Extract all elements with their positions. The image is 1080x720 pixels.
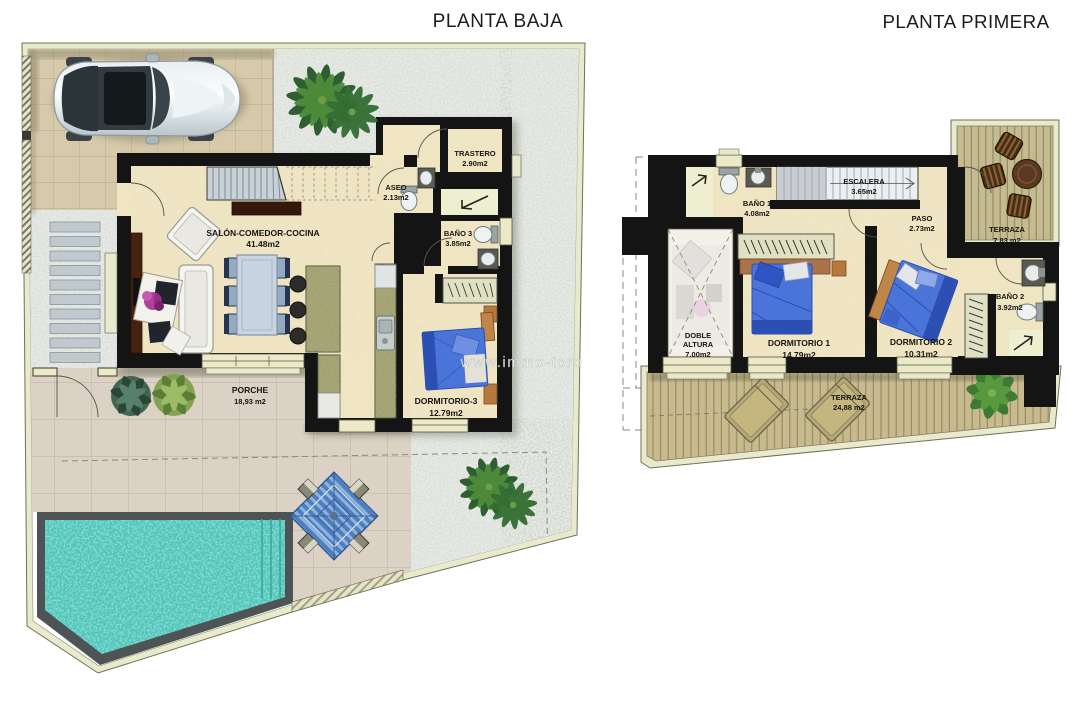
svg-text:7.00m2: 7.00m2 — [685, 350, 710, 359]
svg-text:SALÓN-COMEDOR-COCINA: SALÓN-COMEDOR-COCINA — [206, 227, 319, 238]
svg-text:41.48m2: 41.48m2 — [246, 239, 280, 249]
svg-text:www.immo-toro: www.immo-toro — [460, 354, 584, 371]
svg-text:ESCALERA: ESCALERA — [843, 177, 885, 186]
svg-text:3.92m2: 3.92m2 — [997, 303, 1022, 312]
svg-text:PLANTA BAJA: PLANTA BAJA — [433, 11, 564, 32]
svg-text:DOBLE: DOBLE — [685, 331, 711, 340]
svg-text:14.79m2: 14.79m2 — [782, 350, 816, 360]
svg-text:BAÑO 1: BAÑO 1 — [743, 199, 771, 208]
svg-text:18,93 m2: 18,93 m2 — [234, 397, 266, 406]
svg-text:3.65m2: 3.65m2 — [851, 187, 876, 196]
svg-text:7,83 m2: 7,83 m2 — [993, 236, 1021, 245]
svg-text:DORMITORIO 2: DORMITORIO 2 — [890, 337, 952, 347]
svg-text:4.08m2: 4.08m2 — [744, 209, 769, 218]
svg-text:ALTURA: ALTURA — [683, 340, 714, 349]
svg-text:PLANTA PRIMERA: PLANTA PRIMERA — [882, 11, 1049, 32]
svg-text:BAÑO 3: BAÑO 3 — [444, 229, 472, 238]
svg-text:2.13m2: 2.13m2 — [383, 193, 408, 202]
svg-text:2.73m2: 2.73m2 — [909, 224, 934, 233]
svg-text:BAÑO 2: BAÑO 2 — [996, 292, 1024, 301]
svg-text:PORCHE: PORCHE — [232, 385, 269, 395]
svg-text:2.90m2: 2.90m2 — [462, 159, 487, 168]
svg-text:TERRAZA: TERRAZA — [831, 393, 867, 402]
svg-text:12.79m2: 12.79m2 — [429, 408, 463, 418]
svg-text:DORMITORIO-3: DORMITORIO-3 — [415, 396, 478, 406]
svg-text:DORMITORIO 1: DORMITORIO 1 — [768, 338, 830, 348]
svg-text:24,88 m2: 24,88 m2 — [833, 403, 865, 412]
svg-text:10.31m2: 10.31m2 — [904, 349, 938, 359]
svg-text:TERRAZA: TERRAZA — [989, 225, 1025, 234]
svg-text:PASO: PASO — [912, 214, 933, 223]
svg-text:3.85m2: 3.85m2 — [445, 239, 470, 248]
svg-text:TRASTERO: TRASTERO — [454, 149, 495, 158]
svg-text:ASEO: ASEO — [385, 183, 406, 192]
